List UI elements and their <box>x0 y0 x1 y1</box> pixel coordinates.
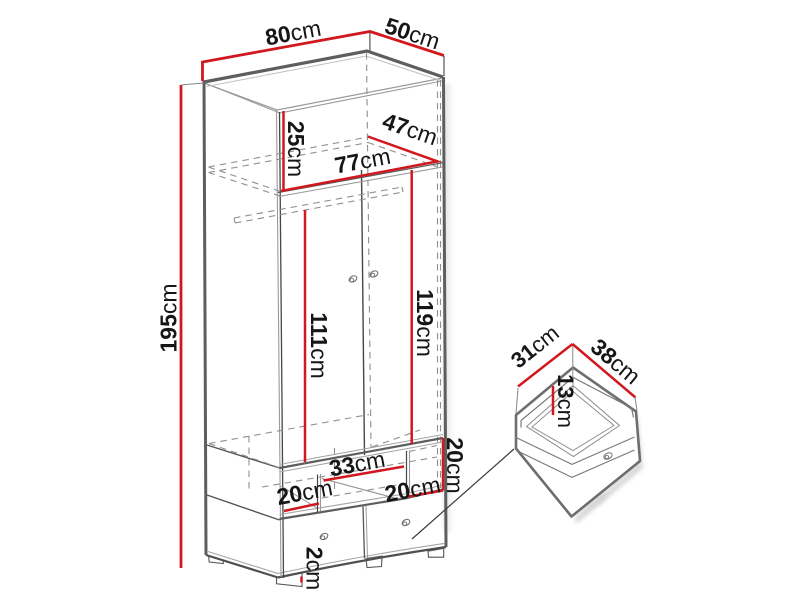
svg-text:13cm: 13cm <box>553 374 578 428</box>
svg-text:20cm: 20cm <box>442 437 468 493</box>
svg-text:111cm: 111cm <box>306 312 332 379</box>
svg-text:195cm: 195cm <box>156 283 182 352</box>
svg-text:2cm: 2cm <box>302 547 328 590</box>
svg-text:119cm: 119cm <box>412 289 438 357</box>
svg-text:25cm: 25cm <box>283 121 309 177</box>
